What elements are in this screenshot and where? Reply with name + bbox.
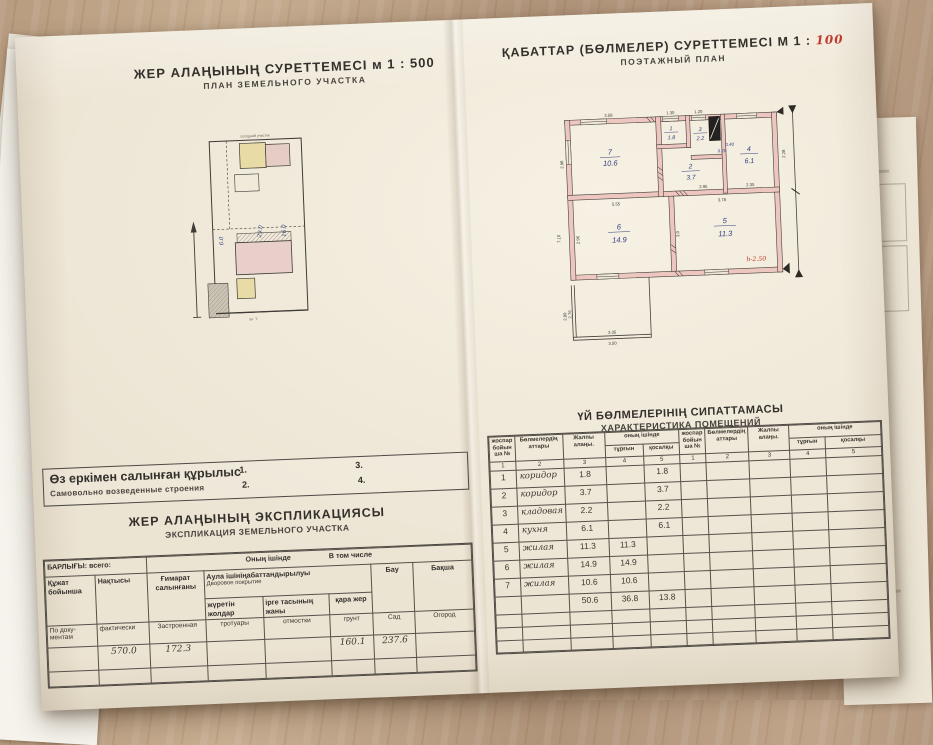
- selfbuilt-title-kk: Өз еркімен салынған құрылыс: [49, 465, 241, 487]
- selfbuilt-n4: 4.: [358, 475, 366, 485]
- room4-area: 6.1: [744, 158, 754, 165]
- expl-incl-ru: В том числе: [329, 550, 373, 561]
- right-page: ҚАБАТТАР (БӨЛМЕЛЕР) СУРЕТТЕМЕСІ М 1 : 10…: [451, 3, 899, 693]
- col-room-name: Бөлмелердің аттары: [515, 434, 564, 461]
- dim-2-35: 2.35: [746, 182, 755, 187]
- hw-dim-0-40: 0.40: [725, 142, 734, 147]
- dim-3-58: 3.58: [604, 113, 613, 118]
- right-page-header: ҚАБАТТАР (БӨЛМЕЛЕР) СУРЕТТЕМЕСІ М 1 : 10…: [483, 31, 864, 72]
- room7-number: 7: [608, 148, 613, 157]
- expl-value-garden: 237.6: [374, 633, 417, 659]
- right-title-scale-value-handwritten: 100: [815, 32, 844, 47]
- selfbuilt-n2: 2.: [242, 479, 250, 489]
- selfbuilt-n3: 3.: [355, 460, 363, 470]
- expl-col7-kk: Бау: [371, 562, 415, 613]
- dim-1-30: 1.30: [666, 110, 675, 115]
- dim-7-10: 7.10: [556, 234, 561, 243]
- room4-number: 4: [747, 146, 751, 153]
- selfbuilt-n1: 1.: [239, 465, 247, 475]
- room2-area: 3.7: [686, 174, 696, 181]
- expl-value-built: 172.3: [150, 642, 208, 668]
- expl-value-fact: 570.0: [98, 644, 151, 670]
- expl-col5-kk: ірге тасының жаны: [263, 594, 331, 618]
- document-spread: ЖЕР АЛАҢЫНЫҢ СУРЕТТЕМЕСІ м 1 : 500 ПЛАН …: [15, 3, 899, 711]
- room3-area: 2.2: [696, 136, 705, 142]
- col-room-name-2: Бөлмелердің аттары: [705, 427, 749, 454]
- left-title-scale: м 1 : 500: [372, 55, 435, 73]
- left-page: ЖЕР АЛАҢЫНЫҢ СУРЕТТЕМЕСІ м 1 : 500 ПЛАН …: [15, 20, 479, 711]
- dim-1-20: 1.20: [694, 109, 703, 114]
- col-total-area-2: Жалпы алаңы.: [748, 425, 790, 452]
- dim-2-28: 2.28: [781, 149, 786, 158]
- expl-col2-kk: Нақтысы: [95, 573, 149, 624]
- street-label: ул. Т.: [249, 317, 258, 321]
- dim-2-98: 2.98: [559, 160, 564, 169]
- north-arrow-icon: [189, 221, 201, 317]
- explication-heading: ЖЕР АЛАҢЫНЫҢ ЭКСПЛИКАЦИЯСЫ ЭКСПЛИКАЦИЯ З…: [64, 502, 450, 543]
- expl-col8-kk: Бақша: [413, 560, 474, 611]
- expl-col8-ru: Огород: [415, 609, 475, 633]
- expl-col1-ru: По доку- ментам: [47, 624, 98, 648]
- totals-total: 50.6: [569, 593, 612, 613]
- expl-col3-ru: Застроенная: [149, 620, 207, 644]
- room1-area: 1.8: [667, 135, 676, 141]
- dim-3-35: 3.35: [608, 330, 617, 335]
- col-total-area: Жалпы алаңы.: [562, 433, 605, 460]
- expl-col1-kk: Құжат бойынша: [45, 575, 97, 626]
- dim-2-96: 2.96: [575, 235, 580, 244]
- expl-col6-ru: грунт: [330, 613, 374, 637]
- left-page-header: ЖЕР АЛАҢЫНЫҢ СУРЕТТЕМЕСІ м 1 : 500 ПЛАН …: [74, 52, 495, 96]
- selfbuilt-title-ru: Самовольно возведенные строения: [50, 483, 205, 498]
- floor-plan: 3.58 1.30 1.20 2.98 7.10 2.28 2.95 2.35 …: [550, 90, 825, 358]
- dim-5-55: 5.55: [612, 201, 621, 206]
- building-pink-top: [265, 144, 290, 167]
- room2-number: 2: [688, 163, 693, 170]
- expl-incl-kk: Оның ішінде: [245, 553, 291, 564]
- building-yellow-bottom: [237, 278, 256, 299]
- explication-table: БАРЛЫҒЫ: всего: Оның ішінде В том числе …: [44, 544, 477, 688]
- room6-number: 6: [617, 222, 622, 231]
- dashed-line-v: [226, 141, 230, 229]
- dim-3-50: 3.50: [608, 341, 617, 346]
- hw-dim-0-20: 0.20: [718, 148, 727, 153]
- expl-col4-kk: жүретін жолдар: [205, 596, 264, 619]
- stove-icon: [709, 116, 721, 140]
- dim-3-0: 3.0: [675, 230, 680, 237]
- neighbor-label: соседний участок: [240, 133, 270, 138]
- expl-col7-ru: Сад: [373, 611, 416, 635]
- hw-dim-6-0: 6.0: [219, 236, 225, 246]
- totals-living: 36.8: [611, 591, 650, 611]
- room3-number: 3: [698, 127, 702, 133]
- expl-col4-ru: тротуары: [206, 617, 265, 641]
- building-yellow-top: [239, 143, 266, 169]
- dim-2-95: 2.95: [699, 184, 708, 189]
- land-plot-plan: соседний участок 6.0 29.0 16.0 ул. Т.: [178, 106, 372, 348]
- room1-number: 1: [669, 126, 672, 132]
- selfbuilt-box: Өз еркімен салынған құрылыс Самовольно в…: [42, 452, 469, 507]
- expl-value-ground: 160.1: [331, 635, 375, 661]
- expl-col5-ru: отмостки: [263, 615, 331, 640]
- expl-col6-kk: қара жер: [329, 592, 373, 615]
- photo-of-technical-passport: { "left_page": { "title": "ЖЕР АЛАҢЫНЫҢ …: [0, 0, 933, 700]
- room5-number: 5: [722, 216, 727, 225]
- hw-stove-dims: 0.40 0.20: [717, 142, 735, 154]
- street-line: [216, 310, 308, 314]
- open-structure: [235, 174, 260, 192]
- col-plan-no: жоспар бойын ша №: [489, 436, 516, 462]
- dim-3-78: 3.78: [718, 197, 727, 202]
- room-labels: 7 10.6 1 1.8 3 2.2 2 3.7 4 6.1 6 14.9 5: [599, 123, 762, 245]
- room7-area: 10.6: [603, 158, 619, 168]
- expl-col2-ru: фактически: [97, 622, 150, 646]
- col-plan-no-2: жоспар бойын ша №: [679, 429, 706, 455]
- expl-col3-kk: Ғимарат салынғаны: [147, 571, 206, 622]
- rooms-table: жоспар бойын ша № Бөлмелердің аттары Жал…: [488, 421, 889, 654]
- expl-value-doc: [48, 646, 99, 672]
- room5-area: 11.3: [718, 229, 733, 239]
- right-title-scale-prefix: М 1 :: [777, 34, 811, 49]
- room6-area: 14.9: [612, 235, 628, 245]
- main-house: [235, 241, 292, 275]
- dim-2-76: 2.76: [567, 310, 572, 319]
- totals-aux: 13.8: [649, 590, 686, 609]
- height-note-red: h-2.50: [746, 256, 766, 264]
